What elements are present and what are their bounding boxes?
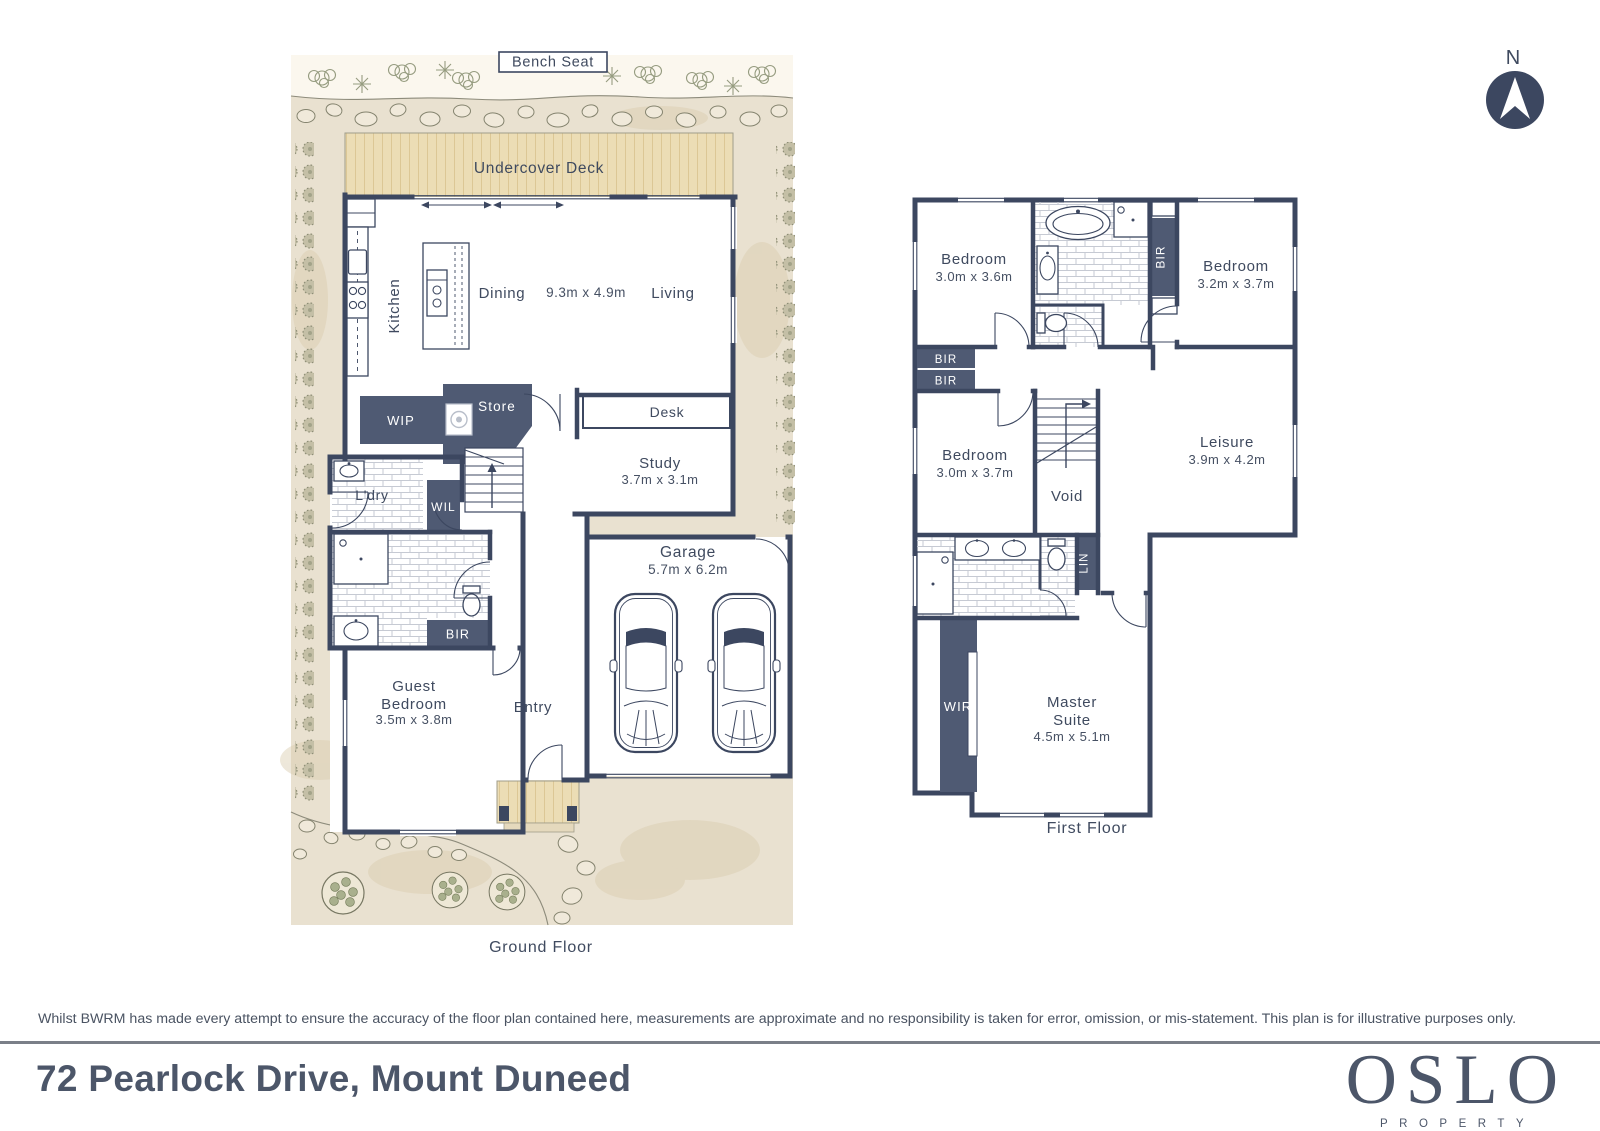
vanity-icon <box>334 616 378 646</box>
vanity-icon-main <box>1037 246 1058 294</box>
shrub-row-left <box>295 142 314 802</box>
tree-icon <box>432 872 468 908</box>
toilet-icon <box>463 586 480 616</box>
label-bedroom3-dims: 3.2m x 3.7m <box>1197 276 1274 291</box>
label-bir-vertical: BIR <box>1154 245 1168 268</box>
label-bir-a: BIR <box>935 354 957 366</box>
label-living: Living <box>651 285 694 302</box>
label-study: Study <box>639 455 681 472</box>
bathtub-icon <box>1046 207 1110 240</box>
stairs-icon <box>465 448 523 512</box>
label-wil: WIL <box>431 500 456 514</box>
property-address: 72 Pearlock Drive, Mount Duneed <box>36 1058 631 1100</box>
ground-floor-plan: Bench Seat Undercover Deck <box>280 52 795 956</box>
label-laundry: L'dry <box>355 487 388 503</box>
tree-icon <box>322 872 364 914</box>
brand-logo: OSLO PROPERTY <box>1346 1045 1558 1130</box>
label-desk: Desk <box>650 404 685 420</box>
label-master-suite: Suite <box>1053 712 1091 729</box>
label-bench-seat: Bench Seat <box>512 55 594 71</box>
label-wip: WIP <box>387 413 415 428</box>
washing-machine-icon <box>446 404 472 435</box>
label-leisure-dims: 3.9m x 4.2m <box>1188 452 1265 467</box>
car-icon <box>610 594 682 752</box>
disclaimer-text: Whilst BWRM has made every attempt to en… <box>38 1011 1516 1027</box>
shower-icon <box>334 534 388 584</box>
tree-icon <box>489 874 525 910</box>
label-void: Void <box>1051 488 1083 505</box>
kitchen-island <box>423 243 469 349</box>
label-guest: Guest <box>392 678 436 695</box>
undercover-deck: Undercover Deck <box>345 133 733 197</box>
shower-icon-main <box>1114 202 1148 237</box>
label-guest-dims: 3.5m x 3.8m <box>375 712 452 727</box>
label-wir: WIR <box>944 699 973 714</box>
caption-ground-floor: Ground Floor <box>489 939 593 956</box>
brand-name: OSLO <box>1346 1045 1567 1116</box>
floor-plan-page: Bench Seat Undercover Deck <box>0 0 1600 1131</box>
label-entry: Entry <box>514 699 553 716</box>
laundry-sink-icon <box>334 461 364 481</box>
label-study-dims: 3.7m x 3.1m <box>621 472 698 487</box>
label-guest-bedroom: Bedroom <box>381 696 447 713</box>
label-leisure: Leisure <box>1200 434 1254 451</box>
toilet-icon-main <box>1037 313 1067 333</box>
north-arrow-icon: N <box>1486 47 1544 129</box>
ensuite-shower-icon <box>917 552 953 614</box>
label-living-dims: 9.3m x 4.9m <box>546 285 626 300</box>
label-bedroom4-dims: 3.0m x 3.7m <box>936 465 1013 480</box>
label-master: Master <box>1047 694 1097 711</box>
caption-first-floor: First Floor <box>1047 820 1128 837</box>
shrub-row-right <box>776 142 795 526</box>
first-floor-plan: Bedroom 3.0m x 3.6m Bedroom 3.2m x 3.7m … <box>911 196 1299 837</box>
label-kitchen: Kitchen <box>386 279 403 334</box>
label-bir-ground: BIR <box>446 628 470 642</box>
floor-plan-drawing: Bench Seat Undercover Deck <box>0 0 1600 970</box>
label-garage-dims: 5.7m x 6.2m <box>648 562 728 577</box>
label-master-dims: 4.5m x 5.1m <box>1033 729 1110 744</box>
ensuite-vanity-icon <box>955 537 1040 560</box>
label-bir-b: BIR <box>935 376 957 388</box>
car-icon <box>708 594 780 752</box>
label-undercover-deck: Undercover Deck <box>474 160 604 177</box>
label-bedroom4: Bedroom <box>942 447 1008 464</box>
ensuite-toilet-icon <box>1048 539 1065 570</box>
brand-tagline: PROPERTY <box>1346 1118 1570 1130</box>
label-bedroom3: Bedroom <box>1203 258 1269 275</box>
label-dining: Dining <box>479 285 526 302</box>
label-store: Store <box>478 399 516 414</box>
front-porch <box>497 781 579 832</box>
label-bedroom2-dims: 3.0m x 3.6m <box>935 269 1012 284</box>
label-lin: LIN <box>1079 552 1091 573</box>
label-garage: Garage <box>660 544 716 561</box>
label-bedroom2: Bedroom <box>941 251 1007 268</box>
compass-n-label: N <box>1506 47 1520 69</box>
